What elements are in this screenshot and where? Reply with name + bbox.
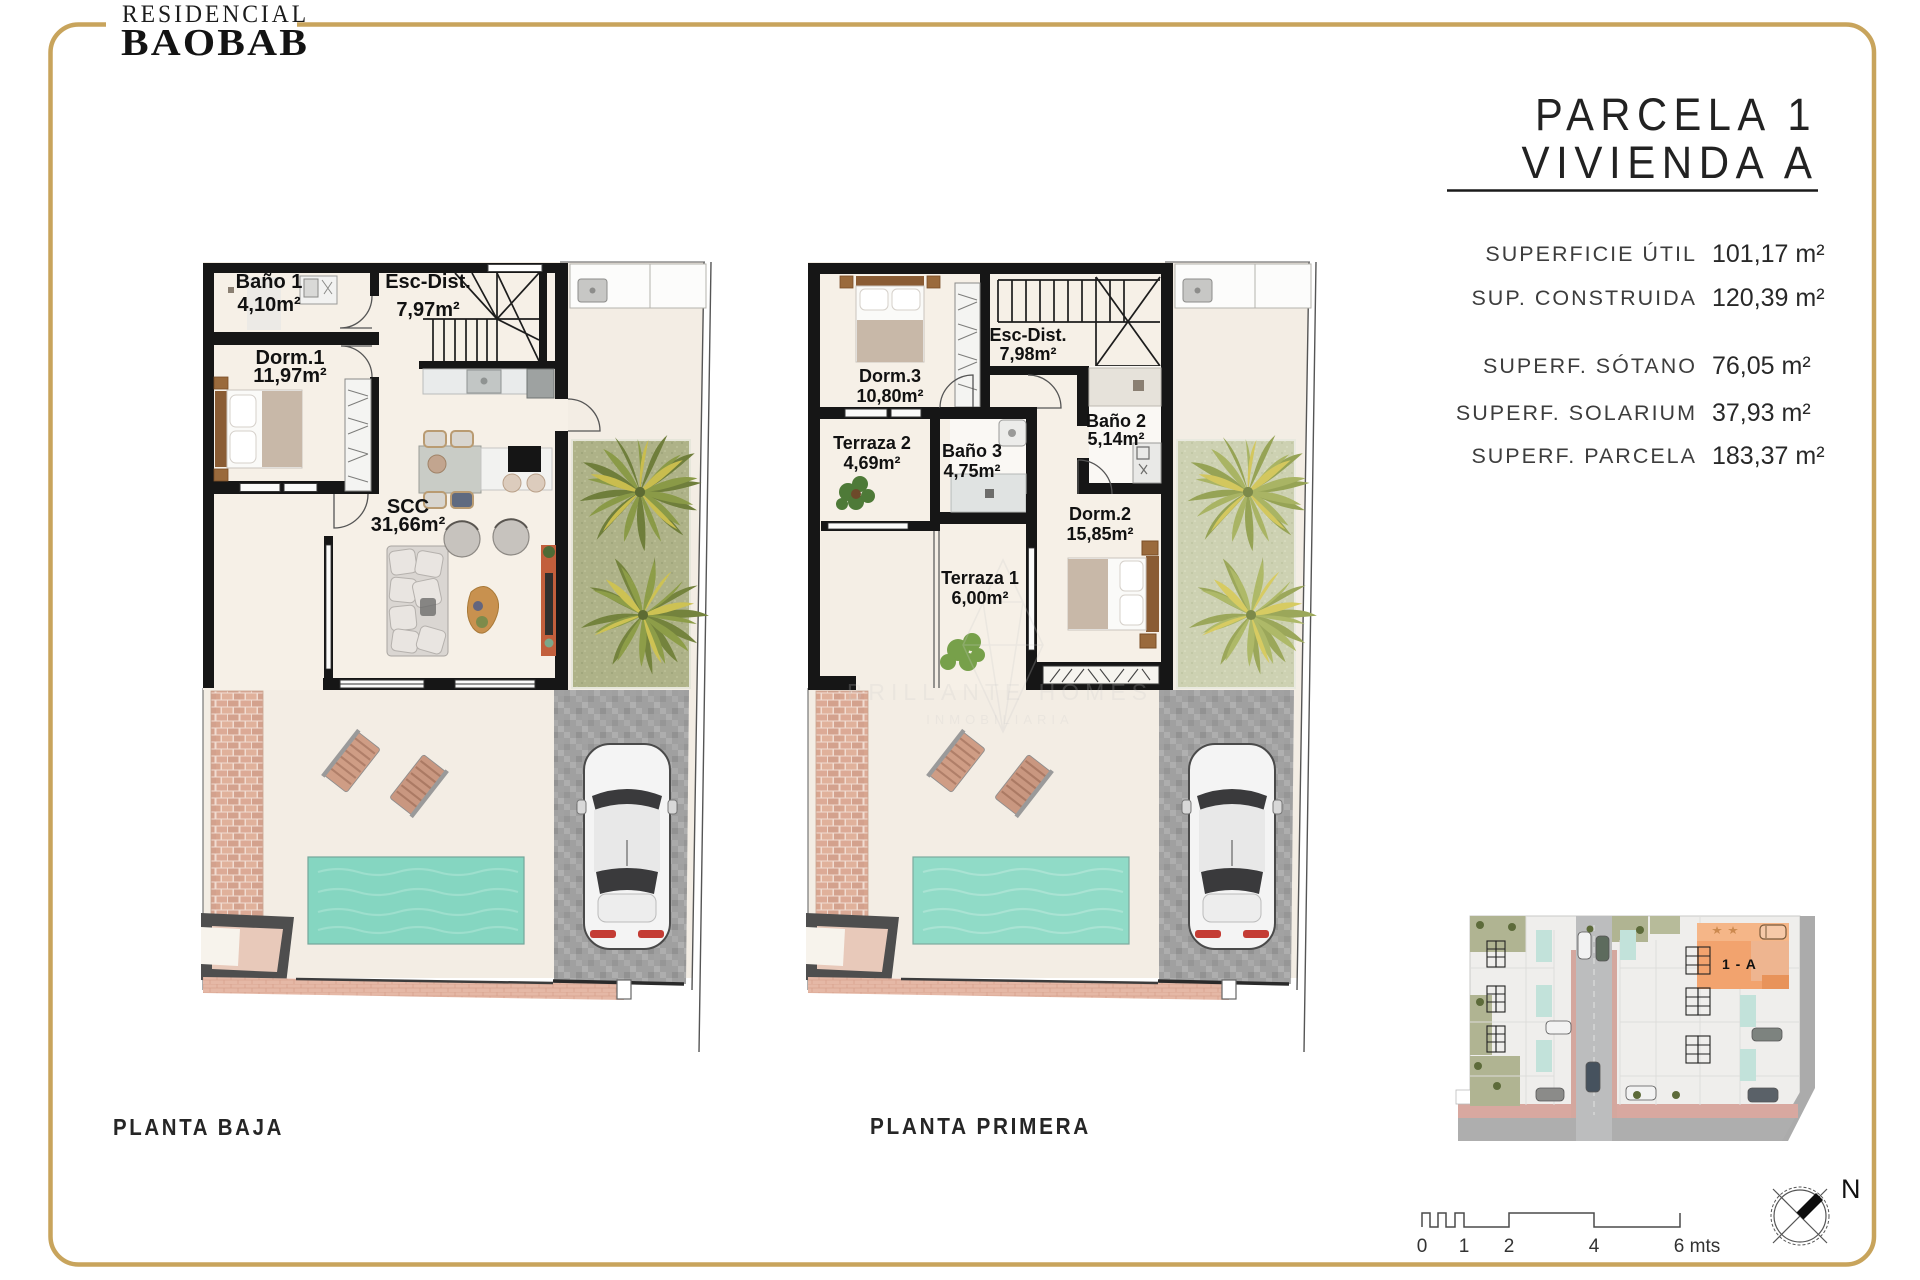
svg-text:N: N — [1841, 1174, 1861, 1204]
svg-text:Dorm.2: Dorm.2 — [1069, 504, 1131, 524]
svg-text:2: 2 — [1504, 1236, 1515, 1257]
svg-text:10,80m²: 10,80m² — [856, 386, 923, 406]
svg-text:Esc-Dist.: Esc-Dist. — [989, 325, 1066, 345]
svg-text:Baño 3: Baño 3 — [942, 441, 1002, 461]
svg-text:4,75m²: 4,75m² — [943, 461, 1000, 481]
svg-text:1: 1 — [1459, 1236, 1470, 1257]
svg-text:Terraza 2: Terraza 2 — [833, 433, 911, 453]
svg-text:4: 4 — [1589, 1236, 1600, 1257]
svg-text:SUPERF. SÓTANO: SUPERF. SÓTANO — [1483, 353, 1697, 378]
svg-text:PLANTA PRIMERA: PLANTA PRIMERA — [870, 1113, 1091, 1139]
svg-text:5,14m²: 5,14m² — [1087, 429, 1144, 449]
svg-text:6 mts: 6 mts — [1674, 1236, 1720, 1257]
svg-text:37,93 m²: 37,93 m² — [1712, 399, 1811, 427]
svg-text:120,39 m²: 120,39 m² — [1712, 284, 1825, 312]
svg-text:7,97m²: 7,97m² — [396, 299, 460, 321]
svg-text:Baño 2: Baño 2 — [1086, 411, 1146, 431]
svg-text:7,98m²: 7,98m² — [999, 344, 1056, 364]
svg-text:183,37 m²: 183,37 m² — [1712, 442, 1825, 470]
svg-text:76,05 m²: 76,05 m² — [1712, 352, 1811, 380]
svg-text:PLANTA BAJA: PLANTA BAJA — [113, 1114, 284, 1140]
svg-text:4,10m²: 4,10m² — [237, 294, 301, 316]
svg-text:Esc-Dist.: Esc-Dist. — [385, 271, 471, 293]
svg-text:Baño 1: Baño 1 — [236, 271, 303, 293]
svg-text:INMOBILIARIA: INMOBILIARIA — [926, 712, 1073, 727]
svg-text:15,85m²: 15,85m² — [1066, 524, 1133, 544]
svg-text:SUPERFICIE ÚTIL: SUPERFICIE ÚTIL — [1485, 241, 1697, 266]
svg-text:Dorm.3: Dorm.3 — [859, 366, 921, 386]
svg-text:BRILLANTE HOMES: BRILLANTE HOMES — [847, 679, 1153, 705]
svg-text:0: 0 — [1417, 1236, 1428, 1257]
svg-text:PARCELA 1: PARCELA 1 — [1535, 89, 1817, 140]
svg-text:VIVIENDA A: VIVIENDA A — [1522, 137, 1819, 188]
svg-text:11,97m²: 11,97m² — [253, 365, 327, 387]
svg-text:SUPERF. PARCELA: SUPERF. PARCELA — [1471, 444, 1697, 468]
svg-text:101,17 m²: 101,17 m² — [1712, 240, 1825, 268]
svg-text:BAOBAB: BAOBAB — [121, 22, 309, 64]
svg-text:1 - A: 1 - A — [1722, 956, 1757, 972]
svg-text:31,66m²: 31,66m² — [371, 514, 446, 536]
svg-text:SUPERF. SOLARIUM: SUPERF. SOLARIUM — [1456, 401, 1697, 425]
svg-text:Terraza 1: Terraza 1 — [941, 568, 1019, 588]
svg-text:6,00m²: 6,00m² — [951, 588, 1008, 608]
svg-text:4,69m²: 4,69m² — [843, 453, 900, 473]
svg-text:SUP. CONSTRUIDA: SUP. CONSTRUIDA — [1471, 286, 1697, 310]
